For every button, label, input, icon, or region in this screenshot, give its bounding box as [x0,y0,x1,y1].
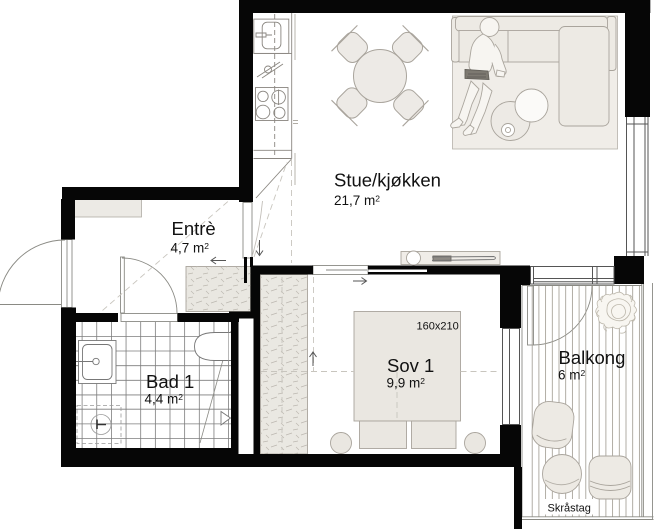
svg-text:Skråstag: Skråstag [548,503,591,515]
svg-text:Bad 1: Bad 1 [146,371,194,392]
svg-text:Stue/kjøkken: Stue/kjøkken [334,170,441,191]
svg-text:9,9 m2: 9,9 m2 [387,376,426,391]
svg-text:Entrè: Entrè [172,218,216,239]
svg-text:Sov 1: Sov 1 [387,355,434,376]
svg-text:6 m2: 6 m2 [558,368,586,383]
svg-text:21,7 m2: 21,7 m2 [334,193,380,208]
svg-text:4,7 m2: 4,7 m2 [171,241,210,256]
svg-text:4,4 m2: 4,4 m2 [145,392,184,407]
svg-text:160x210: 160x210 [417,321,459,333]
svg-text:Balkong: Balkong [559,347,626,368]
